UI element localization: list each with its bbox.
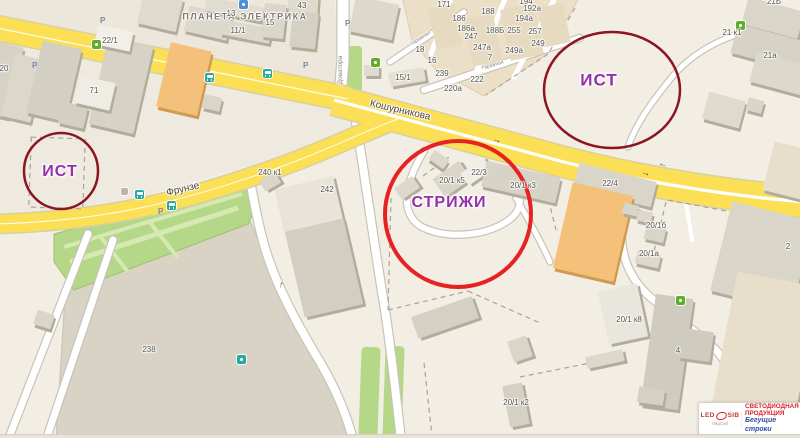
annotation-label: ИСТ xyxy=(580,72,617,89)
bus-icon xyxy=(135,190,144,199)
street-label: Доватора xyxy=(338,56,345,85)
building-label: 194а xyxy=(515,15,533,23)
ledsib-logo-swoosh-icon xyxy=(715,410,728,421)
building-label: 249а xyxy=(505,47,523,55)
building-label: 20/1 к3 xyxy=(510,182,536,190)
oneway-arrow: ← xyxy=(658,159,669,170)
ad-line-2: ПРОДУКЦИЯ xyxy=(745,410,800,417)
building-label: 255 xyxy=(507,27,520,35)
bus-icon xyxy=(205,73,214,82)
building-label: 21а xyxy=(763,52,776,60)
building-label: 15/1 xyxy=(395,74,411,82)
building-label: 192а xyxy=(523,5,541,13)
map-overlay: PPPPP←→→↑ПЛАНЕТА ЭЛЕКТРИКАКошурниковаФру… xyxy=(0,0,800,438)
ledsib-ad-text: СВЕТОДИОДНАЯ ПРОДУКЦИЯ Бегущие строки xyxy=(742,403,800,434)
ledsib-logo-sib: SIB xyxy=(728,412,740,419)
building-label: 247 xyxy=(464,33,477,41)
building-label: 186 xyxy=(452,15,465,23)
poi-title-label: ПЛАНЕТА ЭЛЕКТРИКА xyxy=(182,13,307,22)
p-icon: P xyxy=(158,207,163,216)
building-label: 238 xyxy=(142,346,155,354)
green-icon xyxy=(371,58,380,67)
bus-icon xyxy=(263,69,272,78)
map-canvas[interactable]: PPPPP←→→↑ПЛАНЕТА ЭЛЕКТРИКАКошурниковаФру… xyxy=(0,0,800,438)
street-label: Фрунзе xyxy=(166,181,201,198)
ledsib-tagline: ЛедСиб xyxy=(699,421,741,426)
street-label: Кошурникова xyxy=(369,99,431,123)
building-label: 222 xyxy=(470,76,483,84)
building-label: 247а xyxy=(473,44,491,52)
building-label: 43 xyxy=(298,2,307,10)
building-label: 239 xyxy=(435,70,448,78)
building-label: 20 xyxy=(0,65,8,73)
oneway-arrow: → xyxy=(641,168,652,179)
map-bottom-edge xyxy=(0,434,800,438)
building-label: 20/1б xyxy=(646,222,666,230)
bus-icon xyxy=(167,201,176,210)
building-label: 188Б xyxy=(486,27,505,35)
building-label: 171 xyxy=(437,1,450,9)
building-label: 13 xyxy=(227,10,236,18)
oneway-arrow: ↑ xyxy=(278,280,285,290)
building-label: 20/1 к8 xyxy=(616,316,642,324)
green-icon xyxy=(676,296,685,305)
annotation-label: ИСТ xyxy=(42,164,77,180)
p-icon: P xyxy=(345,19,350,28)
p-icon: P xyxy=(100,16,105,25)
building-label: 4 xyxy=(676,347,680,355)
ad-line-3: Бегущие строки xyxy=(745,417,800,434)
building-label: 21 к1 xyxy=(722,29,741,37)
street-label: Гаражная xyxy=(482,60,505,71)
building-label: 71 xyxy=(90,87,99,95)
teal-icon xyxy=(237,355,246,364)
building-label: 20/1 к5 xyxy=(439,177,465,185)
building-label: 249 xyxy=(531,40,544,48)
building-label: 188 xyxy=(481,8,494,16)
building-label: 2 xyxy=(786,243,790,251)
building-label: 18 xyxy=(416,46,425,54)
p-icon: P xyxy=(32,61,37,70)
building-label: 21Б xyxy=(767,0,781,6)
building-label: 22/4 xyxy=(602,180,618,188)
ledsib-logo: LEDSIB ЛедСиб xyxy=(699,411,742,427)
building-label: 257 xyxy=(528,28,541,36)
building-label: 242 xyxy=(320,186,333,194)
building-label: 20/1 к2 xyxy=(503,399,529,407)
ledsib-ad-badge[interactable]: LEDSIB ЛедСиб СВЕТОДИОДНАЯ ПРОДУКЦИЯ Бег… xyxy=(698,402,800,435)
annotation-label: СТРИЖИ xyxy=(411,195,486,211)
building-label: 220а xyxy=(444,85,462,93)
building-label: 22/1 xyxy=(102,37,118,45)
oneway-arrow: → xyxy=(492,135,503,146)
ad-line-1: СВЕТОДИОДНАЯ xyxy=(745,403,800,410)
blue-icon xyxy=(239,0,248,9)
building-label: 22/3 xyxy=(471,169,487,177)
building-label: 240 к1 xyxy=(258,169,282,177)
building-label: 7 xyxy=(488,54,492,62)
ledsib-logo-led: LED xyxy=(701,412,715,419)
green-icon xyxy=(92,40,101,49)
building-label: 15 xyxy=(266,19,275,27)
p-icon: P xyxy=(303,61,308,70)
gray-icon xyxy=(121,188,128,195)
building-label: 11/1 xyxy=(231,27,246,35)
building-label: 20/1а xyxy=(639,250,659,258)
building-label: 16 xyxy=(428,57,437,65)
